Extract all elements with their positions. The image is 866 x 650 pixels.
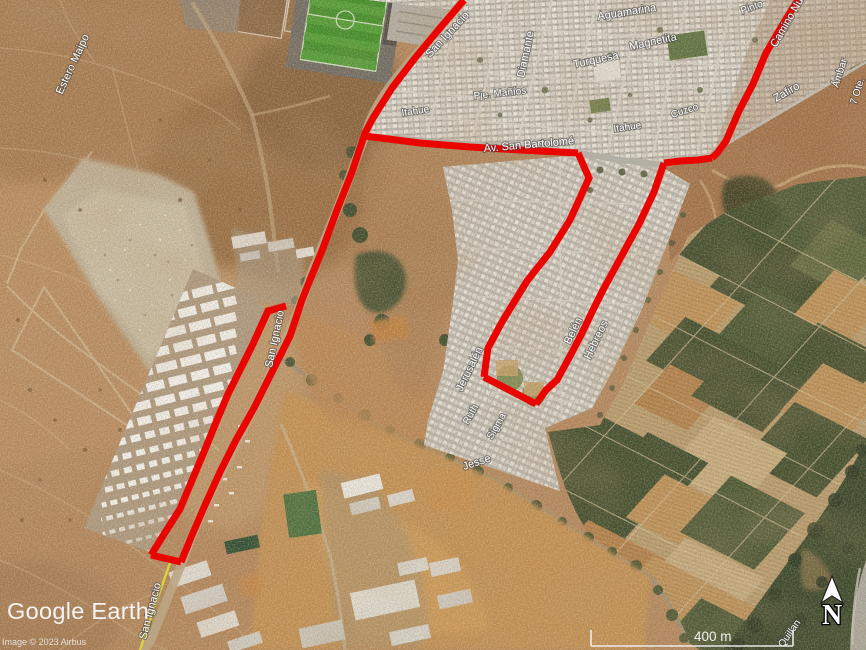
svg-text:Google Earth: Google Earth	[7, 598, 149, 624]
svg-text:Image © 2023 Airbus: Image © 2023 Airbus	[2, 637, 87, 647]
svg-text:400 m: 400 m	[694, 629, 732, 644]
svg-text:N: N	[822, 600, 842, 631]
